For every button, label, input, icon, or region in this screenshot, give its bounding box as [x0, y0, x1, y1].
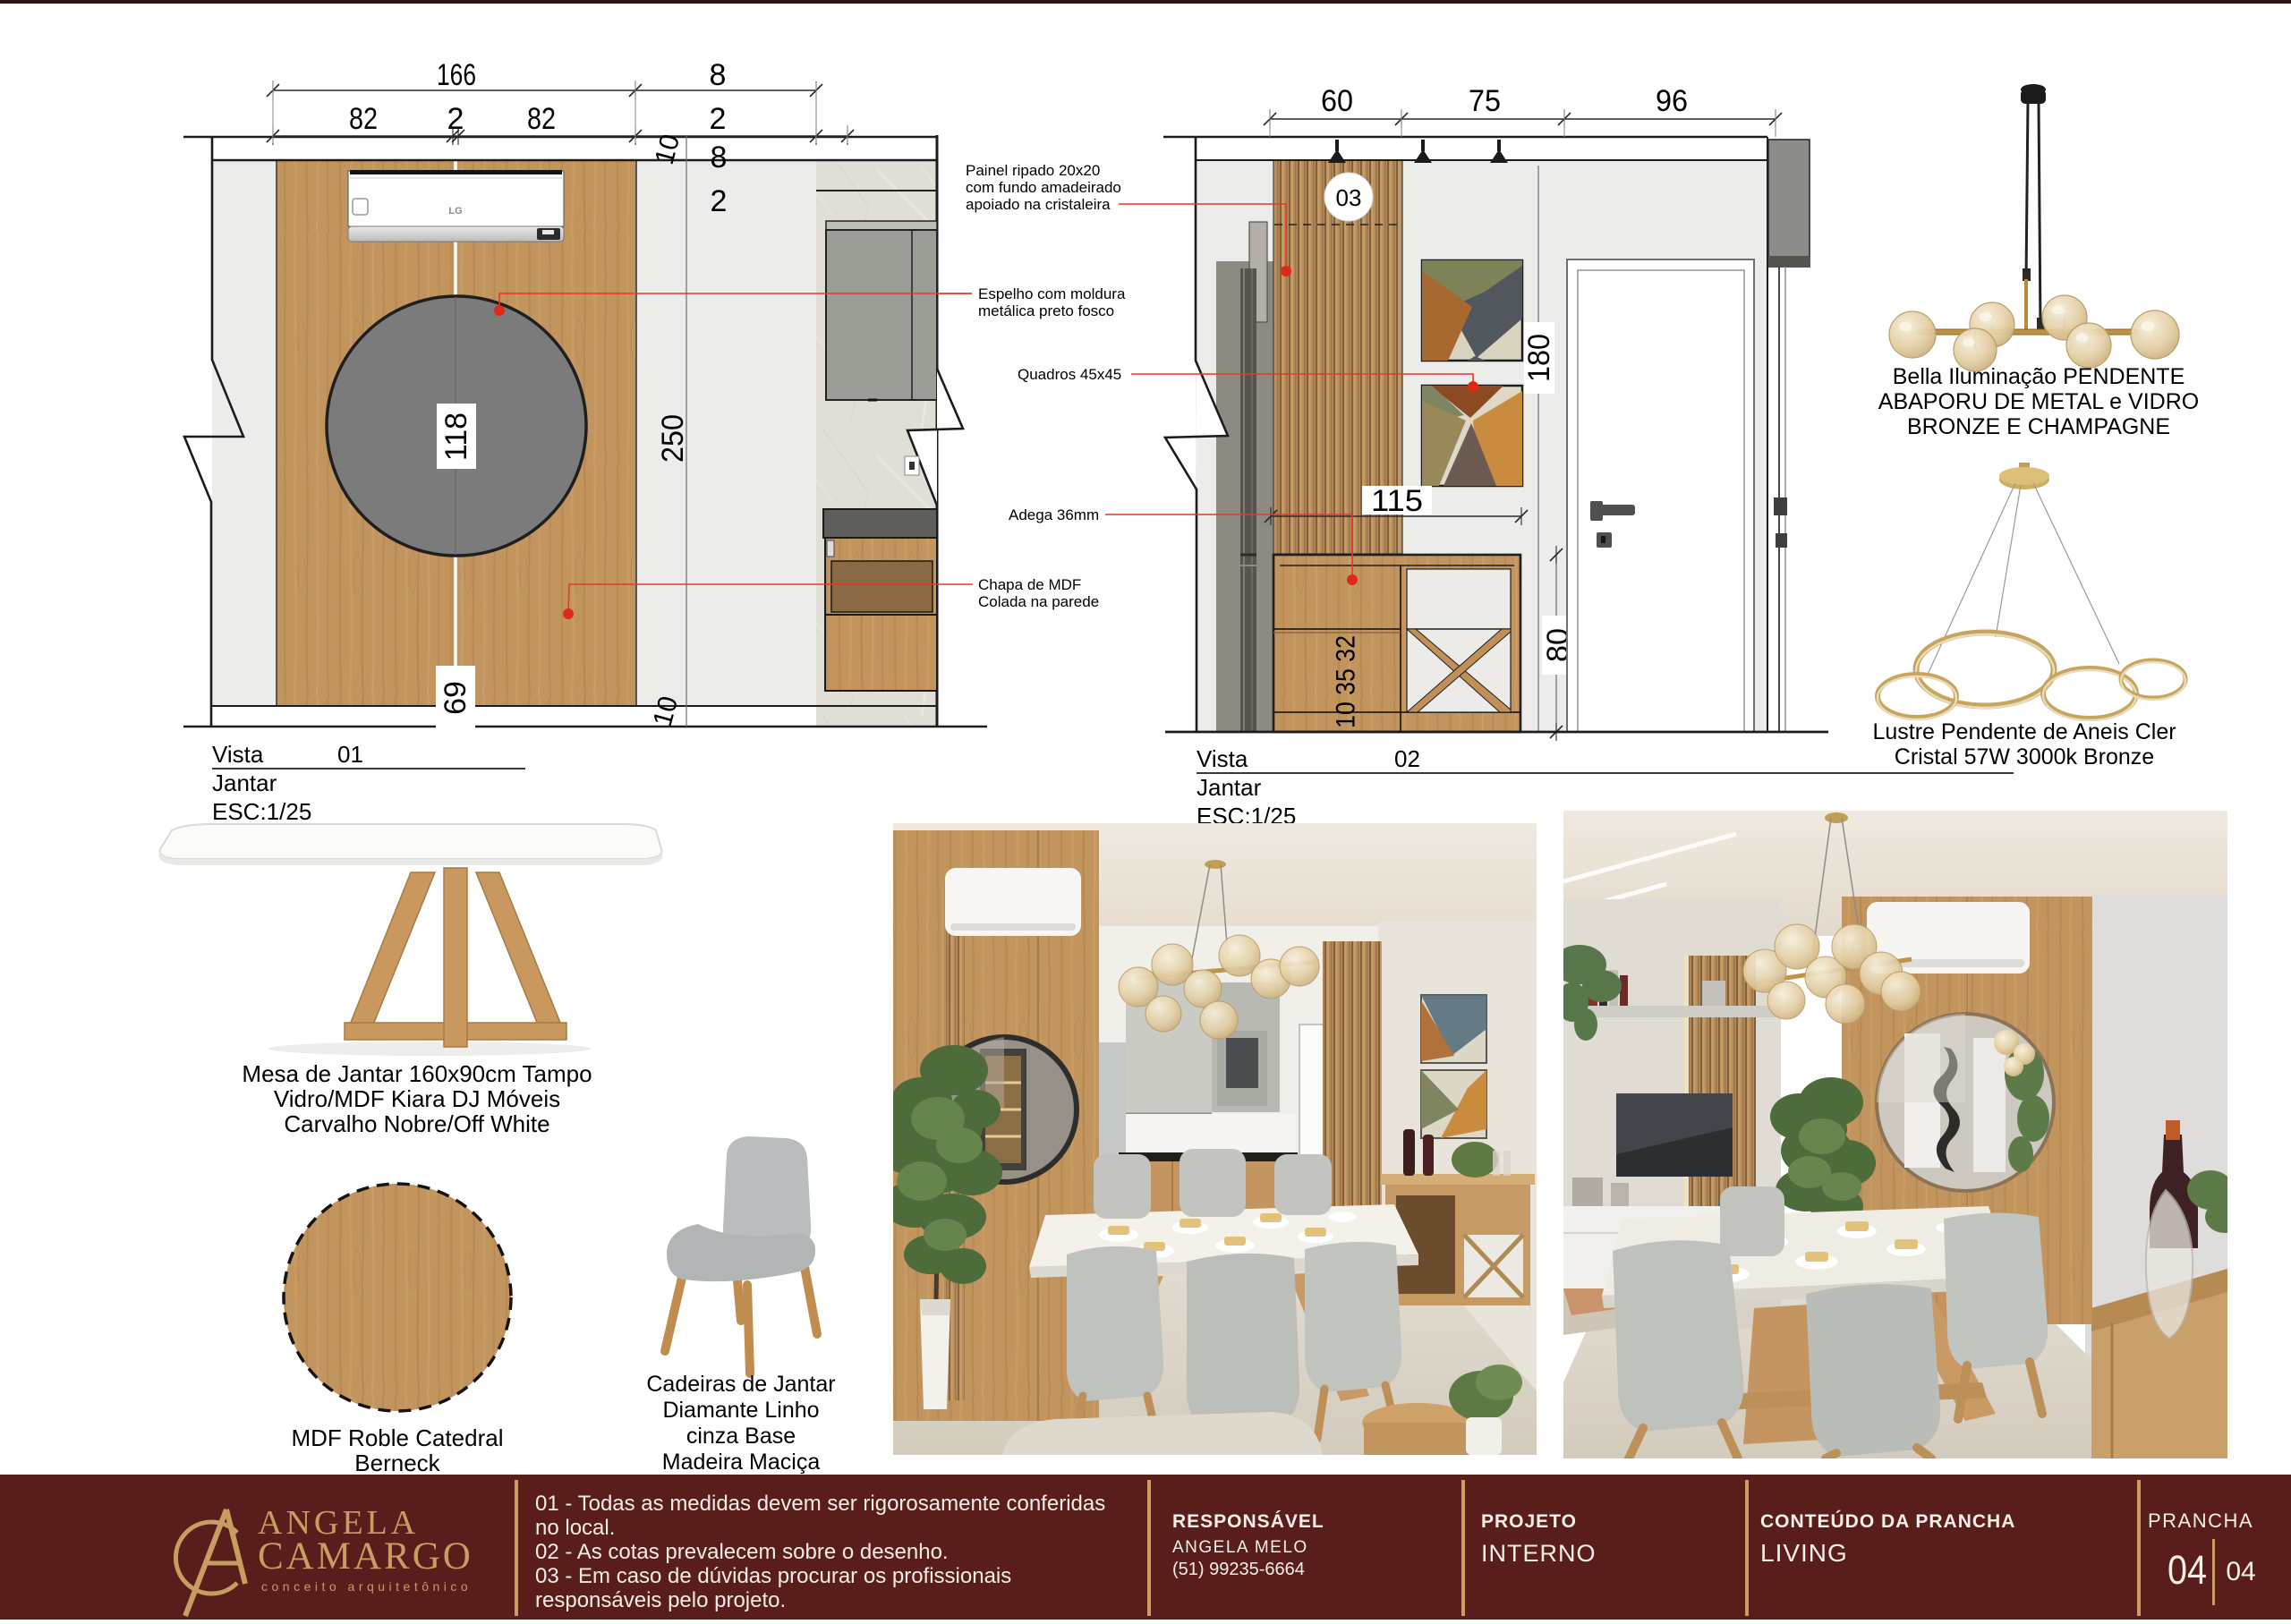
svg-text:250: 250 [656, 414, 690, 463]
svg-text:166: 166 [437, 58, 476, 92]
svg-text:LG: LG [448, 206, 462, 217]
svg-text:responsáveis pelo projeto.: responsáveis pelo projeto. [535, 1588, 786, 1612]
svg-text:CAMARGO: CAMARGO [258, 1535, 473, 1577]
svg-text:01: 01 [337, 741, 363, 768]
svg-text:02: 02 [1394, 745, 1420, 772]
svg-text:03 - Em caso de dúvidas procur: 03 - Em caso de dúvidas procurar os prof… [535, 1564, 1011, 1588]
svg-text:Chapa de MDF: Chapa de MDF [978, 576, 1081, 593]
svg-text:Colada na parede: Colada na parede [978, 593, 1099, 610]
svg-text:ANGELA MELO: ANGELA MELO [1172, 1538, 1308, 1557]
svg-text:69: 69 [439, 681, 473, 715]
svg-text:Vidro/MDF Kiara DJ Móveis: Vidro/MDF Kiara DJ Móveis [274, 1085, 560, 1112]
svg-text:Berneck: Berneck [354, 1450, 440, 1476]
svg-text:8: 8 [711, 140, 728, 174]
svg-text:01 - Todas as medidas devem se: 01 - Todas as medidas devem ser rigorosa… [535, 1492, 1105, 1516]
svg-text:60: 60 [1321, 84, 1353, 118]
svg-text:2: 2 [447, 102, 464, 136]
svg-text:ESC:1/25: ESC:1/25 [212, 798, 311, 825]
svg-text:Vista: Vista [1197, 745, 1248, 772]
svg-text:Madeira Maciça: Madeira Maciça [662, 1450, 821, 1475]
svg-text:PROJETO: PROJETO [1481, 1511, 1577, 1532]
svg-text:CONTEÚDO DA PRANCHA: CONTEÚDO DA PRANCHA [1760, 1510, 2015, 1532]
svg-text:PRANCHA: PRANCHA [2148, 1509, 2253, 1532]
svg-text:180: 180 [1522, 334, 1556, 382]
svg-text:ABAPORU DE METAL e VIDRO: ABAPORU DE METAL e VIDRO [1878, 389, 2199, 414]
svg-text:Cristal 57W 3000k Bronze: Cristal 57W 3000k Bronze [1895, 744, 2154, 769]
svg-text:02 - As cotas prevalecem sobre: 02 - As cotas prevalecem sobre o desenho… [535, 1540, 949, 1564]
svg-text:Carvalho Nobre/Off White: Carvalho Nobre/Off White [284, 1110, 549, 1137]
svg-text:(51) 99235-6664: (51) 99235-6664 [1172, 1560, 1305, 1579]
svg-text:118: 118 [439, 412, 473, 461]
svg-text:Vista: Vista [212, 741, 264, 768]
svg-text:apoiado na cristaleira: apoiado na cristaleira [966, 196, 1111, 213]
svg-text:Bella Iluminação PENDENTE: Bella Iluminação PENDENTE [1893, 364, 2185, 389]
svg-text:2: 2 [710, 102, 727, 136]
svg-text:Diamante Linho: Diamante Linho [662, 1398, 819, 1423]
svg-text:Espelho com moldura: Espelho com moldura [978, 285, 1126, 302]
svg-text:no local.: no local. [535, 1516, 615, 1540]
svg-text:INTERNO: INTERNO [1481, 1540, 1597, 1567]
svg-text:com fundo amadeirado: com fundo amadeirado [966, 179, 1121, 196]
svg-text:03: 03 [1336, 184, 1362, 211]
svg-text:Jantar: Jantar [212, 769, 277, 796]
svg-text:10 35 32: 10 35 32 [1332, 635, 1361, 728]
svg-text:Lustre Pendente de Aneis Cler: Lustre Pendente de Aneis Cler [1872, 719, 2176, 744]
svg-text:Cadeiras de Jantar: Cadeiras de Jantar [646, 1372, 835, 1397]
svg-text:LIVING: LIVING [1760, 1539, 1848, 1567]
svg-text:82: 82 [527, 102, 556, 136]
svg-text:8: 8 [710, 58, 727, 92]
svg-text:conceito arquitetônico: conceito arquitetônico [261, 1579, 472, 1594]
svg-text:75: 75 [1469, 84, 1501, 118]
svg-text:04: 04 [2168, 1547, 2207, 1593]
svg-text:115: 115 [1371, 484, 1423, 518]
svg-text:MDF Roble Catedral: MDF Roble Catedral [292, 1424, 504, 1451]
svg-text:2: 2 [711, 184, 728, 218]
svg-text:Jantar: Jantar [1197, 774, 1262, 801]
svg-text:BRONZE E CHAMPAGNE: BRONZE E CHAMPAGNE [1907, 414, 2170, 439]
svg-text:Painel ripado 20x20: Painel ripado 20x20 [966, 162, 1100, 179]
svg-text:04: 04 [2226, 1557, 2255, 1586]
svg-text:Mesa de Jantar 160x90cm Tampo: Mesa de Jantar 160x90cm Tampo [242, 1060, 592, 1087]
svg-text:82: 82 [349, 102, 378, 136]
svg-text:metálica preto fosco: metálica preto fosco [978, 302, 1114, 319]
svg-text:RESPONSÁVEL: RESPONSÁVEL [1172, 1511, 1324, 1532]
svg-text:Quadros 45x45: Quadros 45x45 [1018, 366, 1121, 383]
svg-text:Adega 36mm: Adega 36mm [1009, 506, 1099, 523]
svg-text:cinza Base: cinza Base [686, 1424, 796, 1449]
svg-text:96: 96 [1656, 84, 1688, 118]
